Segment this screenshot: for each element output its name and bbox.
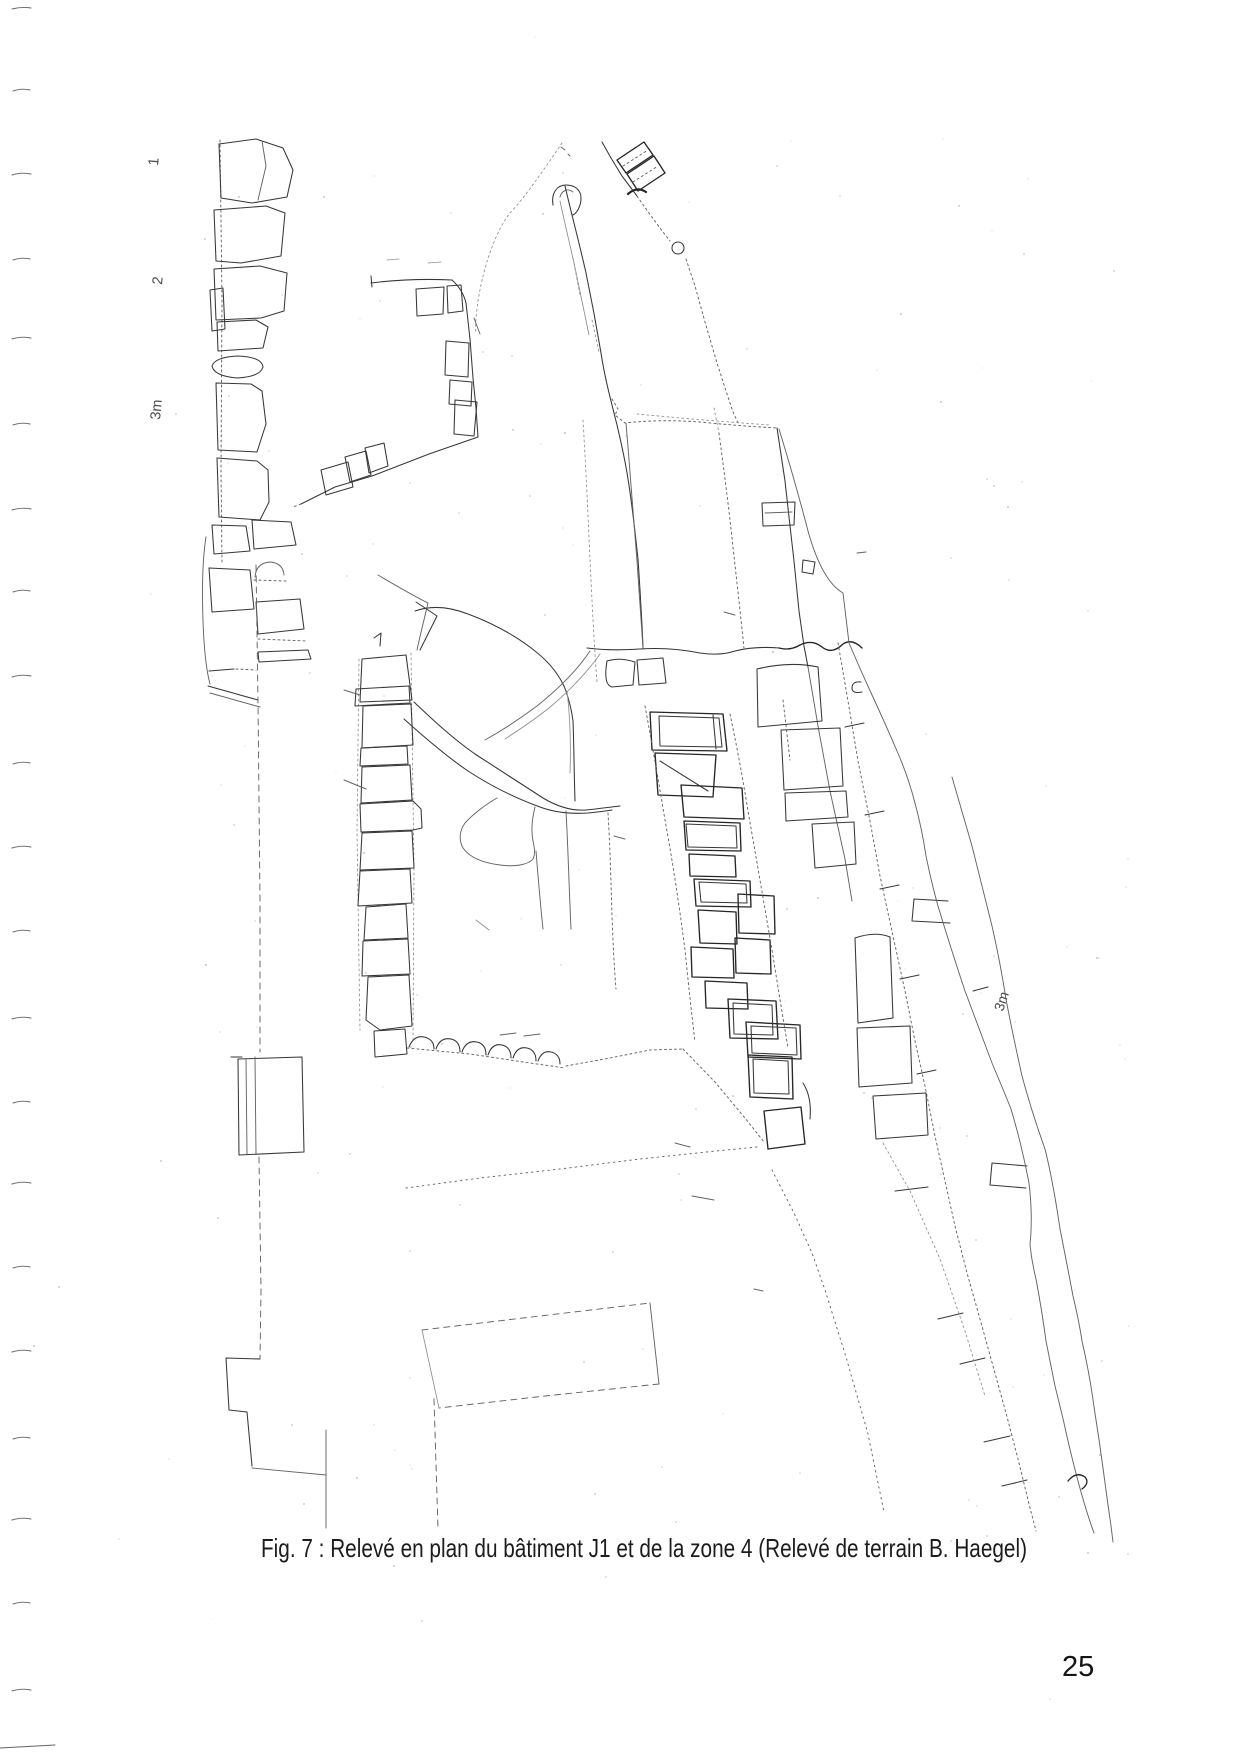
svg-text:25: 25 (1062, 1651, 1094, 1683)
svg-text:2: 2 (150, 276, 167, 285)
svg-text:3m: 3m (148, 399, 166, 420)
svg-text:Fig. 7 : Relevé en plan du bât: Fig. 7 : Relevé en plan du bâtiment J1 e… (261, 1533, 1027, 1563)
svg-text:1: 1 (146, 157, 163, 166)
